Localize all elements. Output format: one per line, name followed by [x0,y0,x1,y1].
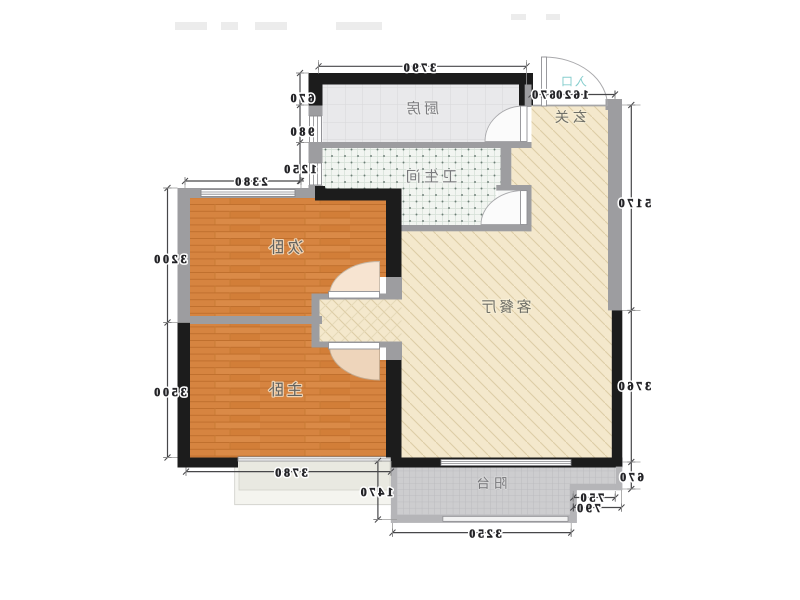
svg-text:2380: 2380 [232,174,267,188]
svg-text:5170: 5170 [616,196,651,210]
svg-text:3500: 3500 [151,385,186,399]
svg-text:1620: 1620 [553,88,588,102]
svg-text:670: 670 [529,88,555,102]
svg-text:790: 790 [574,501,600,515]
svg-text:980: 980 [288,124,314,138]
svg-text:3780: 3780 [272,465,307,479]
svg-text:3200: 3200 [151,252,186,266]
svg-text:670: 670 [288,91,314,105]
svg-text:1250: 1250 [281,162,316,176]
svg-text:3250: 3250 [466,526,501,540]
svg-text:670: 670 [617,470,643,484]
svg-text:3760: 3760 [616,379,651,393]
svg-text:1470: 1470 [358,485,393,499]
svg-text:3790: 3790 [401,61,436,75]
